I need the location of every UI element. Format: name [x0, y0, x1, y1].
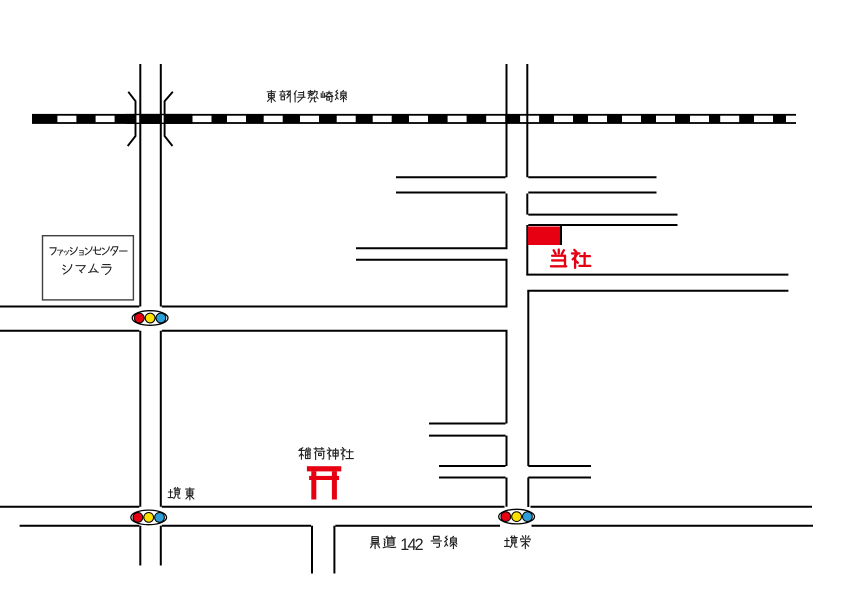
svg-text:142: 142: [400, 536, 423, 554]
